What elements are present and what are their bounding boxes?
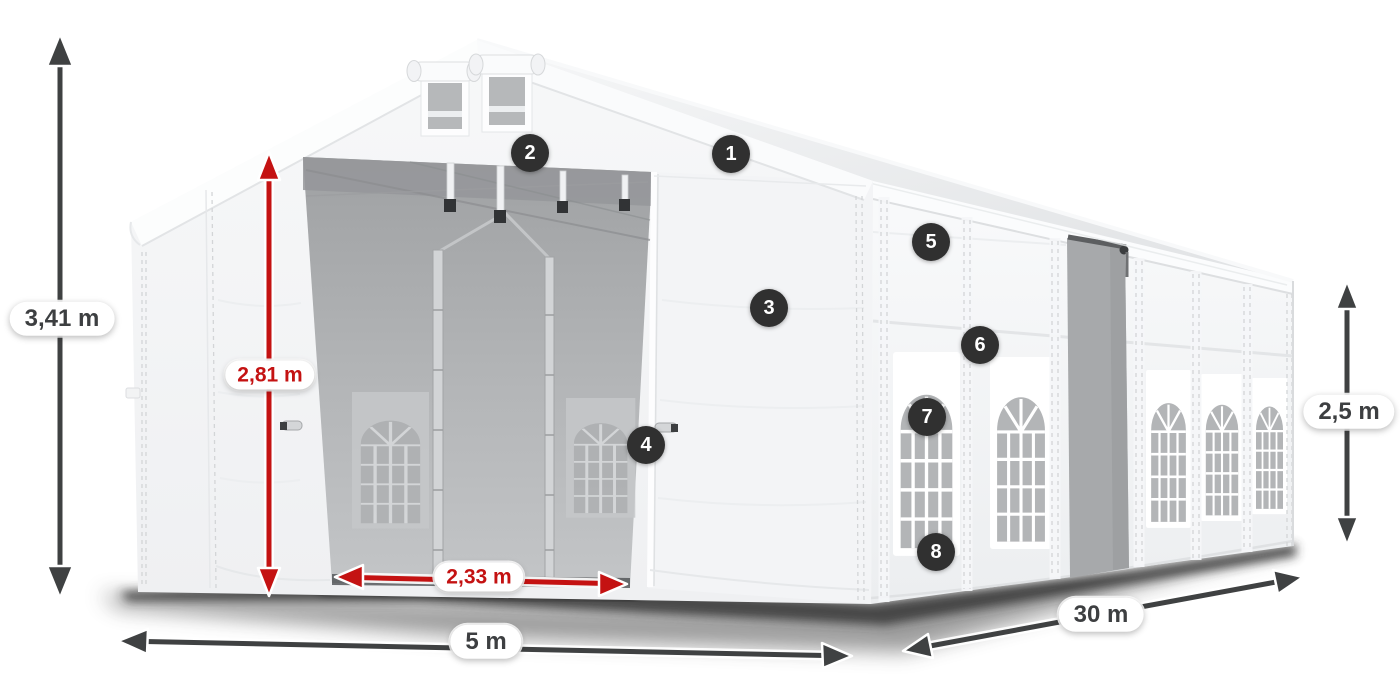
callout-badge-5: 5 — [912, 223, 950, 261]
callout-badge-3: 3 — [750, 289, 788, 327]
dimension-label-width: 5 m — [450, 625, 521, 659]
dimension-label-entrance-width: 2,33 m — [434, 562, 523, 591]
callout-badge-1: 1 — [712, 135, 750, 173]
callout-badge-2: 2 — [511, 134, 549, 172]
callout-badge-7: 7 — [908, 398, 946, 436]
dimension-label-length: 30 m — [1059, 598, 1144, 632]
callout-badge-8: 8 — [917, 533, 955, 571]
tent-dimension-diagram: 3,41 m 2,81 m 2,33 m 5 m 30 m 2,5 m 1 2 … — [0, 0, 1400, 700]
side-entrance-opening — [1067, 237, 1129, 578]
dimension-label-total-height: 3,41 m — [10, 302, 115, 336]
callout-badge-4: 4 — [627, 426, 665, 464]
callout-badge-6: 6 — [961, 326, 999, 364]
dimension-label-side-height: 2,5 m — [1303, 395, 1394, 429]
entrance-opening — [303, 157, 652, 588]
dimension-label-entrance-height: 2,81 m — [225, 360, 314, 389]
tent-illustration — [0, 0, 1400, 700]
